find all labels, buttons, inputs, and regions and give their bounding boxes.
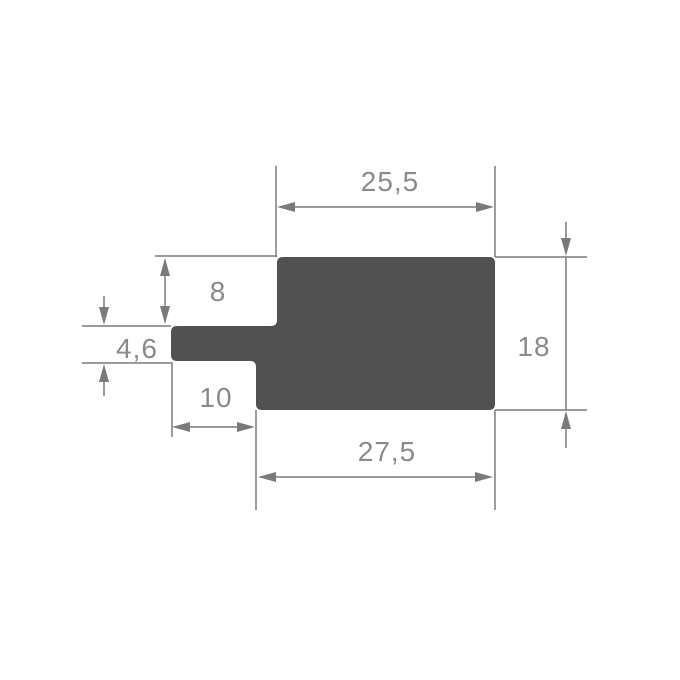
arrowhead-up-icon (160, 258, 170, 276)
dimension-tab-width: 10 (172, 362, 255, 437)
arrowhead-right-icon (237, 422, 255, 432)
technical-drawing: 25,5 8 4,6 10 (0, 0, 680, 680)
dimension-label-left-step-height: 8 (210, 276, 227, 307)
arrowhead-right-icon (475, 472, 493, 482)
dimension-label-total-height: 18 (517, 331, 550, 362)
drawing-canvas: 25,5 8 4,6 10 (0, 0, 680, 680)
dimension-label-top-width: 25,5 (361, 166, 420, 197)
arrowhead-down-icon (160, 306, 170, 324)
arrowhead-left-icon (258, 472, 276, 482)
dimension-label-bottom-width: 27,5 (358, 436, 417, 467)
dimension-tab-height: 4,6 (82, 296, 171, 396)
arrowhead-left-icon (277, 202, 295, 212)
arrowhead-down-icon (99, 307, 109, 325)
arrowhead-up-icon (99, 364, 109, 382)
dimension-bottom-width: 27,5 (256, 410, 495, 510)
dimension-label-tab-height: 4,6 (116, 333, 158, 364)
arrowhead-left-icon (172, 422, 190, 432)
dimension-total-height: 18 (495, 222, 587, 448)
dimension-left-step-height: 8 (155, 256, 277, 324)
dimension-label-tab-width: 10 (199, 382, 232, 413)
dimension-top-width: 25,5 (276, 166, 495, 257)
arrowhead-right-icon (476, 202, 494, 212)
arrowhead-down-icon (561, 238, 571, 256)
arrowhead-up-icon (561, 411, 571, 429)
